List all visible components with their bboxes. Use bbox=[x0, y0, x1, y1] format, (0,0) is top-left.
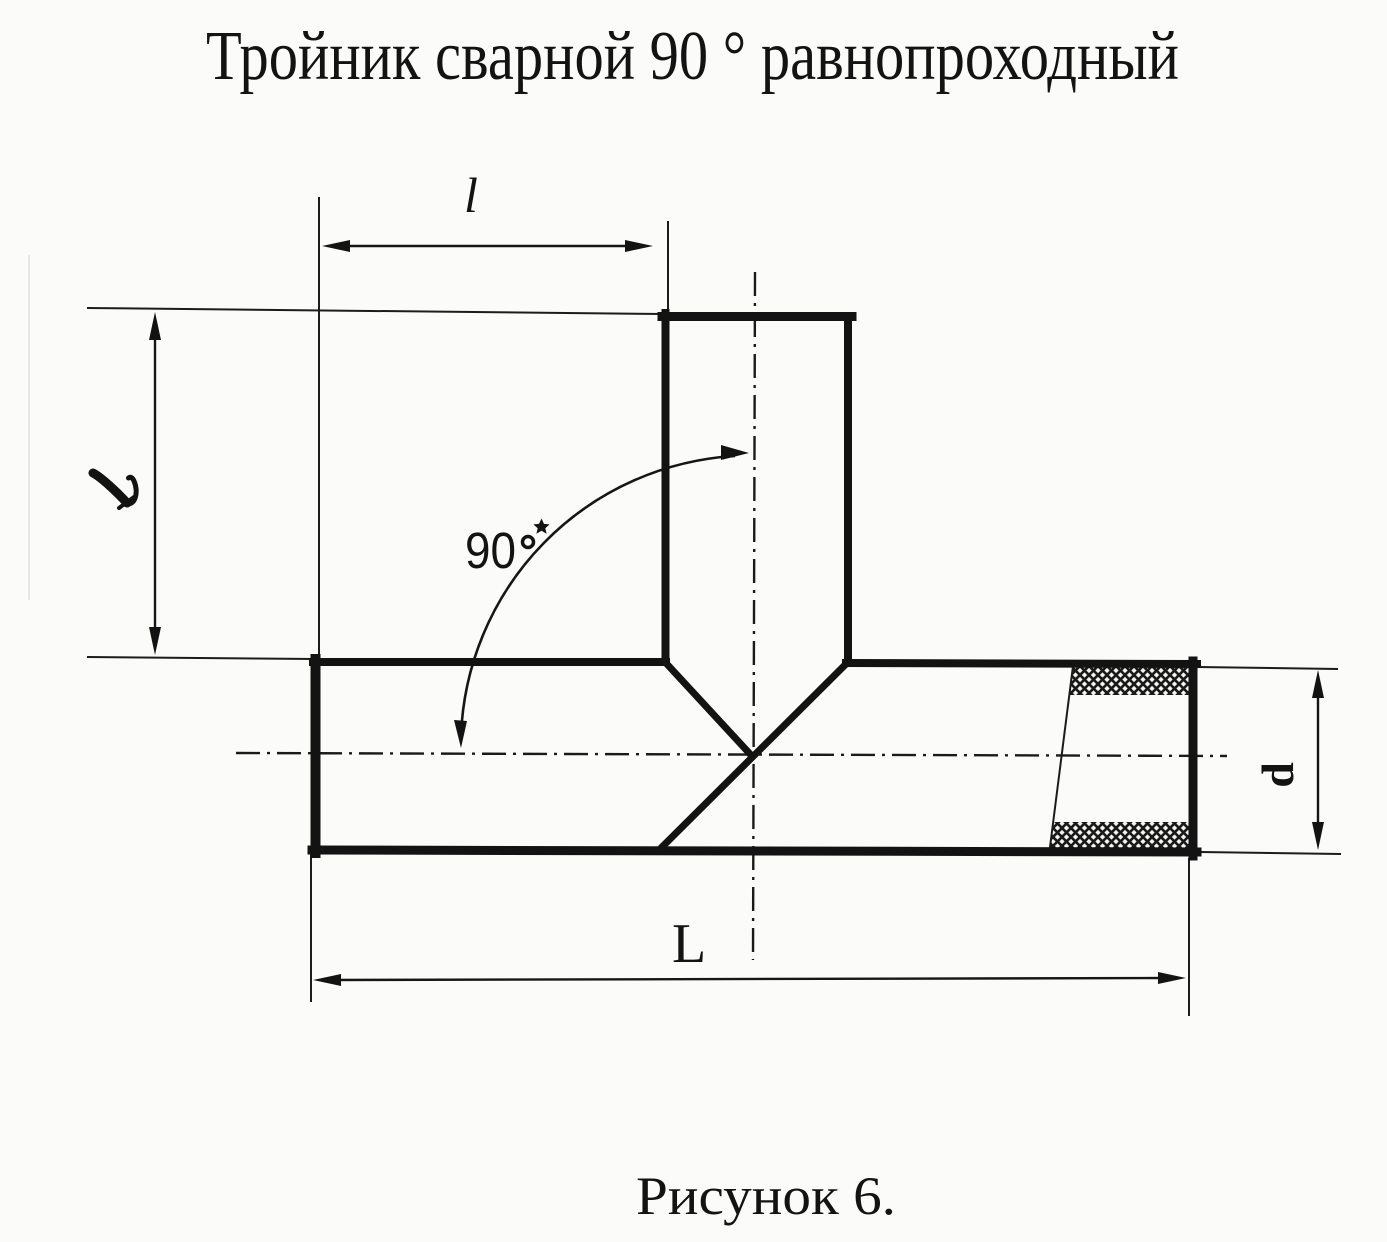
svg-text:d: d bbox=[1252, 762, 1303, 788]
svg-text:90: 90 bbox=[465, 522, 516, 579]
svg-text:l: l bbox=[464, 167, 478, 223]
svg-text:Рисунок 6.: Рисунок 6. bbox=[636, 1166, 896, 1226]
svg-text:L: L bbox=[672, 913, 706, 975]
svg-text:Тройник сварной 90 ° равнопрох: Тройник сварной 90 ° равнопроходный bbox=[206, 18, 1179, 95]
